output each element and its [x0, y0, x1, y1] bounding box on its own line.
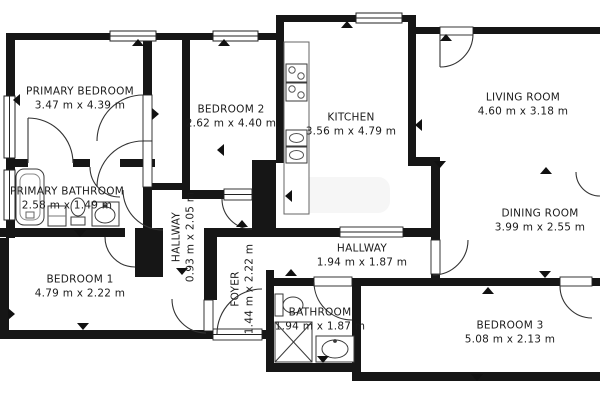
room-label-hallway-center: HALLWAY1.94 m x 1.87 m [317, 243, 408, 270]
room-dimensions: 0.93 m x 2.05 m [184, 192, 198, 283]
door-swing-arc [172, 299, 206, 333]
room-label-kitchen: KITCHEN3.56 m x 4.79 m [306, 112, 397, 139]
room-label-bedroom-1: BEDROOM 14.79 m x 2.22 m [35, 274, 126, 301]
kitchen-sink-icon [286, 130, 307, 163]
door-swing-arc [576, 172, 600, 196]
direction-marker [8, 308, 15, 320]
window-symbol [213, 31, 258, 41]
direction-marker [77, 323, 89, 330]
room-dimensions: 2.58 m x 1.49 m [10, 199, 124, 213]
room-name: BATHROOM [275, 307, 366, 321]
passage-threshold [340, 227, 403, 237]
stove-icon [286, 64, 307, 101]
room-name: BEDROOM 1 [35, 274, 126, 288]
room-name: KITCHEN [306, 112, 397, 126]
room-name: HALLWAY [317, 243, 408, 257]
watermark [298, 177, 390, 213]
direction-marker [341, 21, 353, 28]
door-leaf [314, 277, 352, 286]
door-leaf [204, 300, 213, 331]
room-label-bedroom-3: BEDROOM 35.08 m x 2.13 m [465, 320, 556, 347]
door-leaf [431, 240, 440, 274]
room-dimensions: 5.08 m x 2.13 m [465, 333, 556, 347]
room-name: HALLWAY [171, 192, 185, 283]
direction-marker [285, 269, 297, 276]
room-dimensions: 3.99 m x 2.55 m [495, 221, 586, 235]
room-label-primary-bedroom: PRIMARY BEDROOM3.47 m x 4.39 m [26, 86, 134, 113]
room-label-dining-room: DINING ROOM3.99 m x 2.55 m [495, 208, 586, 235]
direction-marker [415, 119, 422, 131]
room-dimensions: 2.62 m x 4.40 m [186, 117, 277, 131]
room-dimensions: 1.94 m x 1.87 m [275, 320, 366, 334]
room-name: BEDROOM 3 [465, 320, 556, 334]
closet-door-leaf [143, 141, 152, 187]
room-dimensions: 3.47 m x 4.39 m [26, 99, 134, 113]
door-leaf [440, 27, 473, 35]
door-swing-arc [222, 199, 252, 229]
room-label-bathroom: BATHROOM1.94 m x 1.87 m [275, 307, 366, 334]
door-swing-arc [560, 286, 592, 318]
room-name: PRIMARY BEDROOM [26, 86, 134, 100]
door-leaf [560, 277, 592, 286]
room-label-bedroom-2: BEDROOM 22.62 m x 4.40 m [186, 104, 277, 131]
window-symbol [4, 96, 15, 158]
room-dimensions: 4.60 m x 3.18 m [478, 105, 569, 119]
direction-marker [482, 287, 494, 294]
passage-threshold [224, 189, 252, 200]
window-symbol [356, 13, 402, 23]
direction-marker [540, 167, 552, 174]
closet-door-leaf [143, 95, 152, 141]
direction-marker [236, 220, 248, 227]
window-symbol [110, 31, 156, 41]
room-name: DINING ROOM [495, 208, 586, 222]
door-swing-arc [28, 118, 73, 163]
door-swing-arc [105, 237, 135, 267]
floorplan-canvas: PRIMARY BEDROOM3.47 m x 4.39 mBEDROOM 22… [0, 0, 600, 400]
room-label-hallway-west: HALLWAY0.93 m x 2.05 m [171, 192, 198, 283]
room-dimensions: 1.94 m x 1.87 m [317, 256, 408, 270]
direction-marker [152, 108, 159, 120]
room-name: LIVING ROOM [478, 92, 569, 106]
room-dimensions: 3.56 m x 4.79 m [306, 125, 397, 139]
room-dimensions: 1.44 m x 2.22 m [243, 244, 257, 335]
room-name: PRIMARY BATHROOM [10, 186, 124, 200]
room-name: BEDROOM 2 [186, 104, 277, 118]
direction-marker [217, 144, 224, 156]
direction-marker [539, 271, 551, 278]
room-label-living-room: LIVING ROOM4.60 m x 3.18 m [478, 92, 569, 119]
room-dimensions: 4.79 m x 2.22 m [35, 287, 126, 301]
room-label-primary-bathroom: PRIMARY BATHROOM2.58 m x 1.49 m [10, 186, 124, 213]
room-name: FOYER [230, 244, 244, 335]
room-label-foyer: FOYER1.44 m x 2.22 m [230, 244, 257, 335]
